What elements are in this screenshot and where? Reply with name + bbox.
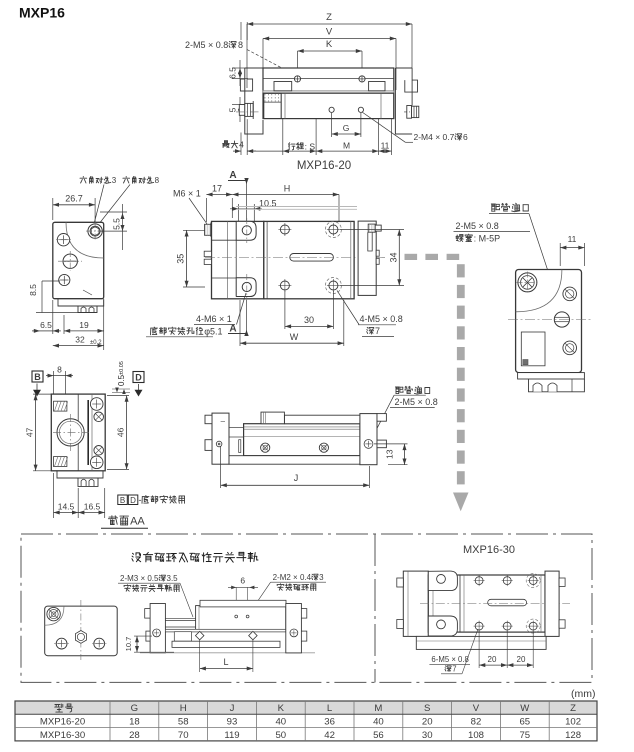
svg-text:36: 36 (324, 717, 335, 728)
svg-text:30: 30 (304, 315, 314, 325)
svg-text:14.5: 14.5 (58, 502, 75, 512)
svg-text:J: J (230, 703, 235, 714)
svg-text:φ5.1: φ5.1 (204, 327, 222, 337)
svg-text:2-M2 × 0.4: 2-M2 × 0.4 (273, 573, 312, 582)
svg-text:4: 4 (239, 140, 244, 150)
svg-text:11: 11 (568, 234, 577, 244)
svg-text:A: A (229, 170, 236, 181)
svg-text:2-M3 × 0.5: 2-M3 × 0.5 (120, 574, 159, 583)
svg-text:V: V (473, 703, 480, 714)
svg-text:5.5: 5.5 (112, 218, 122, 230)
svg-text:56: 56 (373, 730, 384, 741)
svg-text:8: 8 (238, 40, 243, 50)
svg-text:6.5: 6.5 (40, 320, 52, 330)
svg-text:±0.2: ±0.2 (90, 340, 102, 346)
svg-text:MXP16-30: MXP16-30 (40, 730, 85, 741)
svg-text:H: H (284, 184, 291, 194)
svg-text:16.5: 16.5 (84, 502, 101, 512)
svg-text:11: 11 (381, 141, 390, 151)
svg-text:82: 82 (471, 717, 482, 728)
svg-text:28: 28 (129, 730, 140, 741)
svg-text:7: 7 (375, 326, 380, 336)
svg-text:35: 35 (176, 254, 186, 264)
svg-text:: M-5P: : M-5P (474, 234, 501, 244)
svg-text:4-M5 × 0.8: 4-M5 × 0.8 (360, 314, 403, 324)
svg-text:108: 108 (468, 730, 484, 741)
svg-text:18: 18 (129, 717, 140, 728)
svg-text:42: 42 (324, 730, 335, 741)
svg-text:2-M5 × 0.8: 2-M5 × 0.8 (395, 397, 438, 407)
svg-text:W: W (520, 703, 530, 714)
svg-text:H: H (180, 703, 187, 714)
svg-text:M: M (374, 703, 382, 714)
svg-text:32: 32 (75, 335, 85, 345)
svg-text:0.5±0.05: 0.5±0.05 (117, 361, 126, 386)
svg-text:8: 8 (155, 176, 160, 185)
svg-text:20: 20 (517, 655, 526, 664)
svg-text:4-M6 × 1: 4-M6 × 1 (196, 314, 232, 324)
svg-text:20: 20 (488, 655, 497, 664)
svg-text:6.5: 6.5 (228, 67, 238, 79)
svg-text:10.7: 10.7 (124, 637, 133, 652)
svg-text:65: 65 (519, 717, 530, 728)
svg-text:93: 93 (227, 717, 238, 728)
svg-text:40: 40 (373, 717, 384, 728)
svg-text:V: V (326, 27, 333, 38)
svg-text:3: 3 (112, 176, 117, 185)
svg-text:3.5: 3.5 (167, 574, 179, 583)
svg-text:MXP16-20: MXP16-20 (40, 717, 85, 728)
svg-text:2-M4 × 0.7: 2-M4 × 0.7 (414, 132, 455, 142)
svg-text:119: 119 (224, 730, 239, 741)
svg-text:B: B (34, 372, 41, 382)
svg-text:46: 46 (116, 427, 126, 437)
svg-text:MXP16-30: MXP16-30 (463, 544, 515, 556)
svg-text:L: L (327, 703, 333, 714)
svg-text:G: G (343, 123, 350, 133)
svg-text:6-M5 × 0.8: 6-M5 × 0.8 (431, 655, 469, 664)
svg-text:20: 20 (422, 717, 433, 728)
svg-text:30: 30 (422, 730, 433, 741)
svg-text:M: M (343, 141, 350, 151)
svg-text:19: 19 (79, 320, 89, 330)
svg-text:102: 102 (565, 717, 581, 728)
svg-text:G: G (131, 703, 138, 714)
svg-text:M6 × 1: M6 × 1 (173, 189, 201, 199)
svg-text:6: 6 (463, 132, 468, 142)
svg-text:10.5: 10.5 (259, 199, 277, 209)
svg-text:34: 34 (389, 252, 399, 262)
svg-text:17: 17 (212, 184, 222, 194)
svg-text:70: 70 (178, 730, 189, 741)
svg-text:J: J (294, 473, 299, 483)
svg-text:26.7: 26.7 (65, 194, 83, 204)
svg-text:47: 47 (25, 427, 35, 437)
svg-text:AA: AA (130, 516, 145, 528)
svg-text:2-M5 × 0.8: 2-M5 × 0.8 (185, 40, 228, 50)
svg-text:A: A (229, 324, 236, 335)
svg-text:40: 40 (275, 717, 286, 728)
svg-text:K: K (326, 39, 333, 50)
svg-text:-: - (139, 495, 142, 505)
svg-text:MXP16: MXP16 (19, 5, 65, 21)
svg-text:D: D (130, 496, 136, 505)
svg-text:Z: Z (570, 703, 576, 714)
svg-text:L: L (223, 657, 228, 667)
svg-text:3: 3 (319, 573, 324, 582)
svg-text:(mm): (mm) (571, 688, 596, 700)
svg-text:S: S (424, 703, 430, 714)
svg-text:K: K (278, 703, 285, 714)
svg-text:58: 58 (178, 717, 189, 728)
svg-text:B: B (120, 496, 125, 505)
svg-text:D: D (135, 373, 142, 383)
svg-text:6: 6 (240, 576, 245, 586)
svg-text:50: 50 (275, 730, 286, 741)
svg-text:8.5: 8.5 (28, 284, 38, 296)
svg-text:Z: Z (326, 12, 332, 23)
svg-text:75: 75 (519, 730, 530, 741)
svg-text:8: 8 (57, 365, 62, 375)
svg-text:13: 13 (385, 449, 395, 459)
svg-text:MXP16-20: MXP16-20 (297, 160, 351, 172)
svg-text:2-M5 × 0.8: 2-M5 × 0.8 (456, 221, 499, 231)
svg-text:128: 128 (565, 730, 581, 741)
svg-text:W: W (290, 332, 299, 342)
svg-text:7: 7 (452, 665, 456, 674)
